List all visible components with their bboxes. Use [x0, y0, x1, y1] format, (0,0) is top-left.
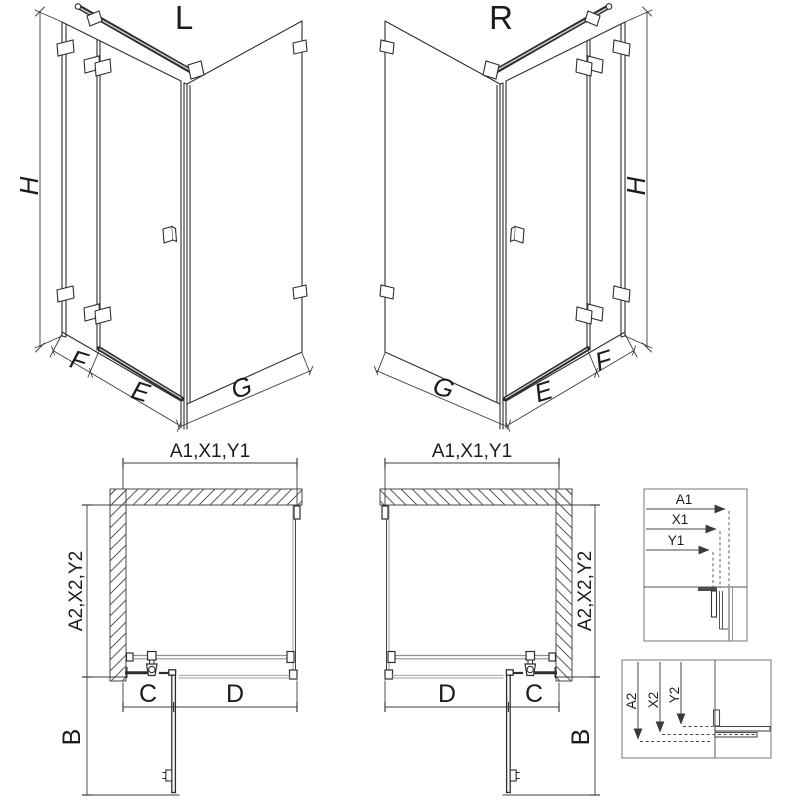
detail-box-depth: A2 X2 Y2	[622, 660, 771, 758]
plan-view-left: A1,X1,Y1 A2,X2,Y2 B C D	[58, 441, 302, 795]
dim-label-height-right: H	[621, 176, 651, 195]
detail-label-y2: Y2	[667, 687, 682, 704]
plan-right-door-swing-label: B	[567, 729, 595, 746]
dim-label-door-left: E	[128, 375, 154, 409]
plan-right-depth-label: A2,X2,Y2	[575, 551, 596, 631]
reference-dashed-lines-width	[713, 511, 729, 590]
technical-drawing-sheet: L H F E G R H F E G A1,X1,Y1 A2,X2,Y2 B …	[0, 0, 800, 800]
iso-view-right: R H F E G	[374, 0, 652, 431]
plan-right-width-label: A1,X1,Y1	[432, 441, 512, 462]
variant-label-left: L	[175, 0, 193, 36]
detail-profile-width	[698, 587, 733, 642]
plan-left-door-label: D	[226, 680, 244, 708]
plan-right-fixed-label: C	[525, 680, 543, 708]
plan-left-depth-label: A2,X2,Y2	[66, 551, 87, 631]
iso-view-left: L H F E G	[14, 0, 313, 431]
plan-left-door-swing-label: B	[58, 729, 86, 746]
detail-box-width-border	[644, 489, 747, 641]
plan-right-door-label: D	[438, 680, 456, 708]
detail-box-width: A1 X1 Y1	[644, 489, 747, 641]
plan-left-width-label: A1,X1,Y1	[170, 441, 250, 462]
detail-label-a1: A1	[676, 492, 693, 507]
dim-label-height-left: H	[14, 176, 44, 195]
detail-label-x1: X1	[672, 512, 689, 527]
reference-dashed-lines-depth	[640, 727, 755, 742]
variant-label-right: R	[489, 0, 513, 36]
detail-box-depth-border	[622, 660, 771, 758]
dim-label-side-right: G	[430, 370, 458, 405]
detail-label-a2: A2	[624, 693, 639, 710]
detail-label-y1: Y1	[668, 533, 685, 548]
detail-label-x2: X2	[646, 692, 661, 709]
plan-left-fixed-label: C	[139, 680, 157, 708]
plan-view-right: A1,X1,Y1 A2,X2,Y2 B C D	[380, 441, 600, 795]
dim-label-door-right: E	[531, 374, 557, 408]
dim-label-fixed-left: F	[67, 344, 93, 378]
detail-profile-depth	[714, 710, 771, 737]
shower-enclosure-drawing: L H F E G R H F E G A1,X1,Y1 A2,X2,Y2 B …	[0, 0, 800, 800]
plan-enclosure-left	[83, 459, 303, 796]
dim-label-fixed-right: F	[591, 343, 617, 377]
